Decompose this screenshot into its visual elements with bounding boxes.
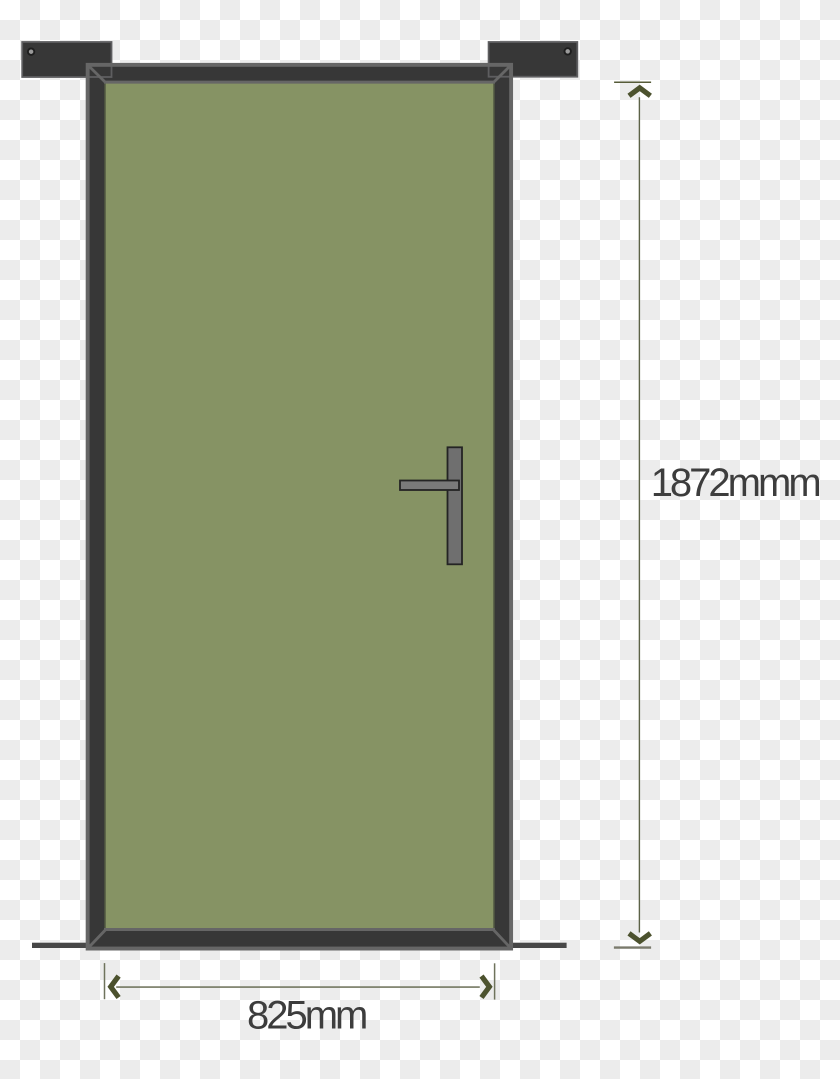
svg-text:825mm: 825mm <box>247 993 366 1037</box>
svg-text:1872mmm: 1872mmm <box>651 461 820 505</box>
